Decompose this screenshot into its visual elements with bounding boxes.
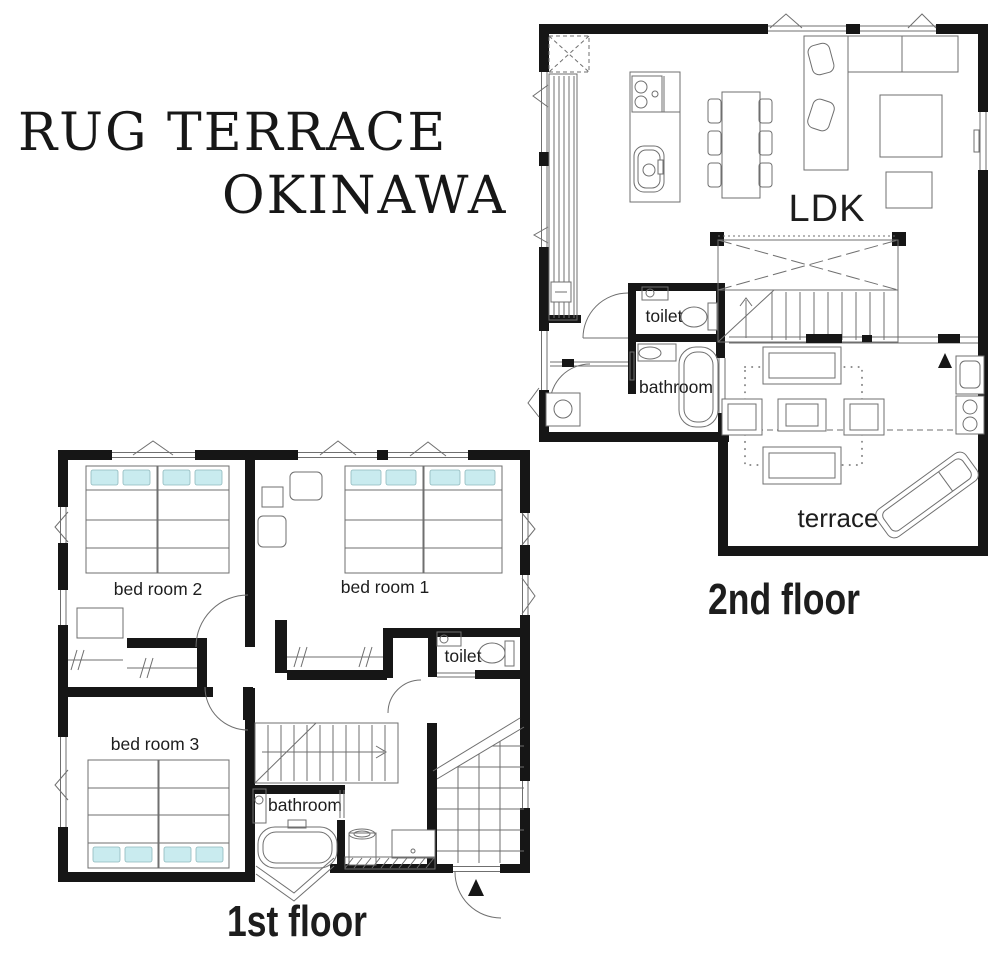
second-floor-windows — [533, 14, 986, 413]
bed — [158, 466, 229, 573]
washroom-1f — [340, 790, 435, 869]
terrace-bench — [763, 347, 841, 384]
pillow — [386, 470, 416, 485]
bed — [424, 466, 502, 573]
room-label-terrace: terrace — [798, 503, 879, 533]
bed — [159, 760, 229, 868]
pillow — [123, 470, 150, 485]
second-floor-plan: LDK toilet — [528, 14, 988, 624]
terrace-area: terrace — [722, 334, 984, 541]
casement-window-icon — [533, 85, 548, 107]
sofa-cushion — [806, 42, 835, 77]
terrace-chair — [722, 399, 762, 435]
toilet-fixture — [681, 307, 707, 327]
room-label-toilet-1f: toilet — [445, 646, 482, 666]
second-floor-label: 2nd floor — [708, 575, 860, 624]
terrace-bench — [763, 447, 841, 484]
stairwell-void — [718, 236, 898, 290]
bed — [88, 760, 158, 868]
side-table — [258, 516, 286, 547]
pillow — [196, 847, 223, 862]
toilet-fixture — [479, 643, 505, 663]
bay-window-icon — [528, 388, 539, 417]
terrace-table — [778, 399, 826, 431]
pillow — [164, 847, 191, 862]
title-line2: OKINAWA — [222, 166, 507, 226]
pillow — [125, 847, 152, 862]
sun-lounger — [873, 449, 982, 541]
toilet-room-2f: toilet — [583, 287, 717, 338]
bed — [345, 466, 423, 573]
pillow — [195, 470, 222, 485]
entrance-genkan — [433, 695, 524, 918]
side-table — [886, 172, 932, 208]
entrance-arrow-icon — [938, 353, 952, 368]
first-floor-plan: bed room 2 — [55, 441, 535, 946]
plan-title: RUG TERRACE OKINAWA — [18, 103, 507, 226]
room-label-ldk: LDK — [789, 188, 866, 230]
pillow — [351, 470, 381, 485]
floorplan-canvas: RUG TERRACE OKINAWA — [0, 0, 1000, 956]
pillow — [465, 470, 495, 485]
l-shaped-sofa — [804, 36, 958, 170]
side-table — [77, 608, 123, 638]
toilet-tank — [505, 641, 514, 666]
pillow — [93, 847, 120, 862]
staircase-1f — [255, 723, 398, 783]
room-label-bedroom1: bed room 1 — [341, 577, 430, 597]
bedroom3: bed room 3 — [88, 734, 229, 868]
room-label-bedroom2: bed room 2 — [114, 579, 203, 599]
bathroom-2f: bathroom — [630, 344, 718, 427]
side-table — [262, 487, 283, 507]
door-swing — [583, 293, 628, 338]
entry-step — [437, 727, 524, 779]
skylight-hatch — [549, 36, 589, 72]
bay-window-icon — [256, 866, 334, 901]
washing-machine — [546, 393, 580, 426]
bed — [86, 466, 157, 573]
room-label-bedroom3: bed room 3 — [111, 734, 200, 754]
closet-rod — [287, 647, 383, 667]
closet-rod — [68, 650, 197, 678]
first-floor-label: 1st floor — [227, 897, 367, 946]
title-line1: RUG TERRACE — [18, 103, 447, 163]
toilet-tank — [708, 303, 717, 330]
pillow — [430, 470, 460, 485]
dining-table-set — [708, 92, 772, 198]
door-swing — [388, 680, 421, 713]
side-table — [290, 472, 322, 500]
vanity-sink — [392, 830, 435, 858]
living-table — [880, 95, 942, 157]
room-label-toilet-2f: toilet — [646, 306, 683, 326]
room-label-bathroom-1f: bathroom — [268, 795, 342, 815]
terrace-chair — [844, 399, 884, 435]
pillow — [163, 470, 190, 485]
entrance-arrow-icon — [468, 879, 484, 896]
louver-strip — [549, 74, 577, 320]
casement-window-icon — [410, 442, 446, 456]
sofa-cushion — [806, 97, 836, 132]
kitchen-island — [630, 72, 680, 202]
bathroom-1f: bathroom — [253, 789, 342, 901]
pillow — [91, 470, 118, 485]
room-label-bathroom-2f: bathroom — [639, 377, 713, 397]
